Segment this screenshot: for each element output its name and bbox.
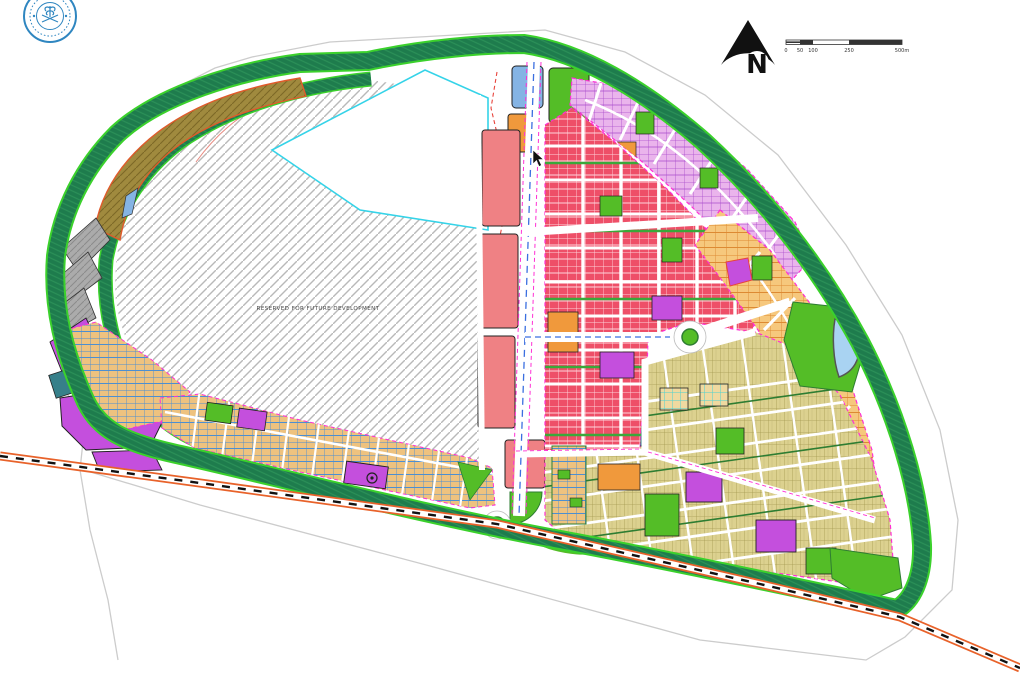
ministry-logo <box>24 0 76 42</box>
school-block-cyan <box>660 388 688 410</box>
scale-tick-label: 250 <box>844 48 854 54</box>
facility-icon-dot <box>370 476 373 479</box>
park-block <box>570 498 582 507</box>
scale-tick-label: 100 <box>808 48 818 54</box>
masterplan-page: RESERVED FOR FUTURE DEVELOPMENT N 0 50 1… <box>0 0 1020 682</box>
facility-block-purple <box>237 408 267 431</box>
scale-tick-label: 50 <box>797 48 803 54</box>
roundabout-island <box>682 329 698 345</box>
north-label: N <box>746 50 768 80</box>
scale-tick-label: 0 <box>784 48 787 54</box>
park-block <box>645 494 679 536</box>
roundabout-north <box>674 321 706 353</box>
park-block <box>716 428 744 454</box>
logo-side-star <box>65 15 67 17</box>
facility-block-purple <box>600 352 634 378</box>
facility-block-purple <box>756 520 796 552</box>
boundary-collector-road <box>478 95 482 470</box>
logo-side-star <box>33 15 35 17</box>
reserved-area-label: RESERVED FOR FUTURE DEVELOPMENT <box>256 306 379 312</box>
north-arrow: N <box>721 20 775 80</box>
scale-tick-label: 500m <box>895 48 910 54</box>
park-block <box>700 168 718 188</box>
park-block <box>636 112 654 134</box>
park-block <box>205 402 233 423</box>
facility-block-purple <box>652 296 682 320</box>
park-block <box>662 238 682 262</box>
masterplan-map: RESERVED FOR FUTURE DEVELOPMENT N 0 50 1… <box>0 0 1020 682</box>
park-block <box>600 196 622 216</box>
park-block <box>558 470 570 479</box>
bluehatch-patch <box>552 446 586 524</box>
school-block-cyan <box>700 384 728 406</box>
facility-block-orange <box>598 464 640 490</box>
scale-bar: 0 50 100 250 500m <box>784 40 909 54</box>
park-block <box>752 256 772 280</box>
commercial-block-salmon <box>480 234 518 328</box>
commercial-block-salmon <box>482 130 520 226</box>
